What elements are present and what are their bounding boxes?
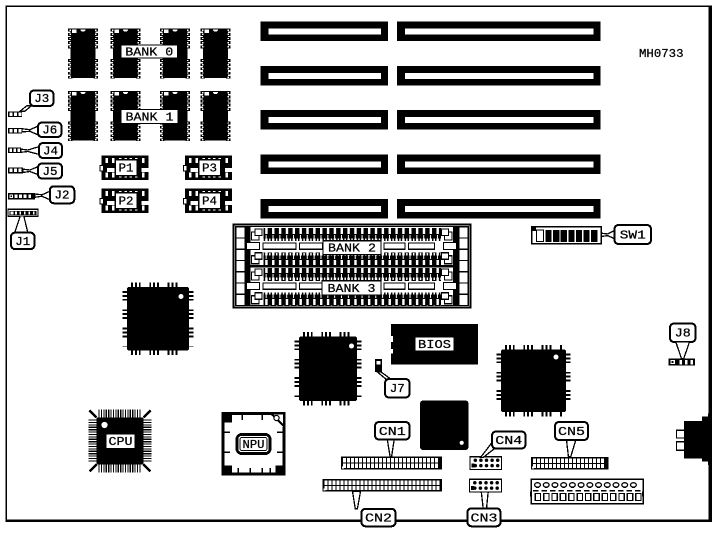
svg-text:BANK 3: BANK 3: [328, 282, 376, 296]
svg-text:BANK 1: BANK 1: [126, 111, 174, 125]
svg-text:BIOS: BIOS: [418, 338, 451, 352]
svg-text:J5: J5: [43, 166, 58, 179]
svg-text:P1: P1: [119, 163, 134, 176]
svg-text:J4: J4: [43, 145, 58, 158]
svg-text:P3: P3: [202, 163, 217, 176]
svg-text:J3: J3: [34, 93, 49, 106]
svg-text:BANK 2: BANK 2: [328, 242, 376, 256]
svg-text:CN2: CN2: [365, 512, 392, 526]
svg-text:J7: J7: [390, 383, 405, 396]
svg-text:SW1: SW1: [620, 229, 646, 243]
svg-text:P4: P4: [202, 196, 217, 209]
svg-text:CN1: CN1: [379, 425, 406, 439]
svg-text:CN5: CN5: [558, 425, 585, 439]
svg-text:J8: J8: [675, 328, 691, 341]
svg-text:J6: J6: [42, 125, 57, 138]
svg-text:BANK 0: BANK 0: [125, 46, 173, 60]
svg-text:J2: J2: [55, 190, 70, 203]
svg-text:NPU: NPU: [243, 439, 265, 452]
svg-text:P2: P2: [119, 196, 134, 209]
svg-text:CN3: CN3: [471, 511, 498, 525]
svg-text:CPU: CPU: [109, 436, 133, 449]
svg-text:J1: J1: [15, 236, 30, 249]
svg-text:MH0733: MH0733: [639, 48, 684, 61]
svg-text:CN4: CN4: [495, 434, 522, 448]
